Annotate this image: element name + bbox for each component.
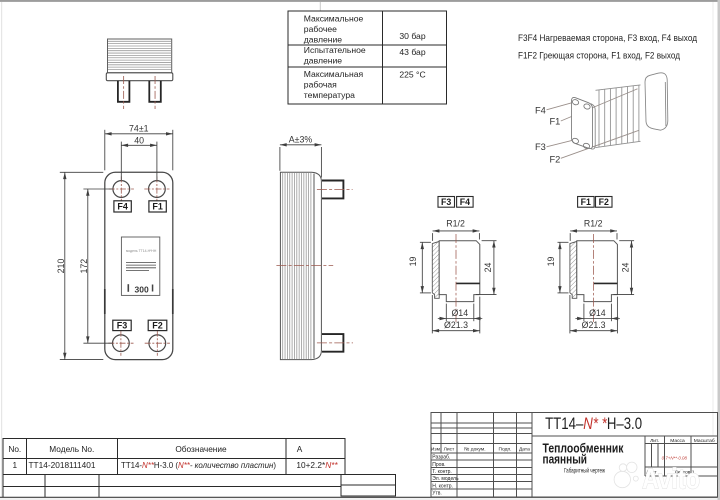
svg-text:Максимальное: Максимальное	[304, 14, 364, 24]
svg-text:10+2.2*N**: 10+2.2*N**	[296, 460, 338, 470]
svg-text:Лист: Лист	[444, 447, 455, 453]
svg-text:A±3%: A±3%	[289, 135, 313, 145]
svg-text:Т. контр.: Т. контр.	[432, 469, 452, 475]
svg-text:температура: температура	[304, 90, 355, 100]
svg-text:40: 40	[134, 135, 144, 145]
svg-text:ТТ14-2018111401: ТТ14-2018111401	[28, 460, 95, 470]
svg-text:Эл. модель: Эл. модель	[432, 476, 459, 482]
svg-text:F3: F3	[441, 197, 451, 207]
svg-text:F1F2 Греющая сторона, F1 вход,: F1F2 Греющая сторона, F1 вход, F2 выход	[518, 51, 680, 61]
svg-text:Дата: Дата	[519, 447, 530, 453]
svg-text:172: 172	[79, 259, 89, 274]
svg-text:F4: F4	[535, 106, 546, 116]
svg-text:ТТ14–N* *Н–3.0: ТТ14–N* *Н–3.0	[545, 415, 642, 433]
svg-text:Масса: Масса	[670, 438, 685, 444]
svg-text:Лит.: Лит.	[650, 438, 659, 444]
svg-text:Н. контр.: Н. контр.	[432, 483, 453, 489]
svg-text:74±1: 74±1	[129, 124, 149, 134]
svg-text:Модель No.: Модель No.	[49, 444, 94, 454]
svg-text:Обозначение: Обозначение	[175, 444, 227, 454]
svg-text:F3: F3	[117, 321, 128, 331]
svg-text:F1: F1	[152, 202, 163, 212]
svg-text:30 бар: 30 бар	[399, 31, 425, 41]
svg-text:F3F4 Нагреваемая сторона, F3 в: F3F4 Нагреваемая сторона, F3 вход, F4 вы…	[518, 33, 698, 43]
svg-text:ТТ14-N**Н-3.0 (N**- количеств: ТТ14-N**Н-3.0 (N**- количество пластин)	[121, 461, 276, 470]
svg-text:Avito: Avito	[642, 463, 700, 495]
svg-text:300: 300	[135, 284, 149, 294]
svg-text:0.7+N**·0.08: 0.7+N**·0.08	[662, 455, 688, 460]
svg-text:43 бар: 43 бар	[399, 47, 425, 57]
svg-text:Разраб.: Разраб.	[432, 455, 450, 461]
svg-text:F1: F1	[581, 197, 591, 207]
svg-text:Масштаб: Масштаб	[694, 438, 715, 444]
svg-text:F1: F1	[550, 116, 561, 126]
svg-text:рабочее: рабочее	[304, 24, 337, 34]
svg-text:давление: давление	[304, 56, 343, 66]
svg-text:рабочая: рабочая	[304, 80, 337, 90]
svg-text:No.: No.	[8, 444, 21, 454]
svg-text:F4: F4	[117, 202, 128, 212]
svg-text:210: 210	[56, 259, 66, 274]
svg-text:F4: F4	[460, 197, 470, 207]
svg-text:F2: F2	[550, 154, 561, 164]
svg-text:Габаритный чертеж: Габаритный чертеж	[564, 467, 605, 475]
svg-text:паянный: паянный	[543, 451, 588, 466]
svg-text:модель ТТ14-Н*НН: модель ТТ14-Н*НН	[126, 249, 157, 253]
svg-text:F2: F2	[152, 321, 163, 331]
svg-text:Испытательное: Испытательное	[304, 45, 366, 55]
svg-text:Максимальная: Максимальная	[304, 69, 364, 79]
svg-text:F2: F2	[599, 197, 609, 207]
svg-text:225 °C: 225 °C	[399, 69, 425, 79]
svg-text:F3: F3	[535, 142, 546, 152]
svg-text:1: 1	[12, 460, 17, 470]
svg-text:A: A	[297, 444, 303, 454]
svg-text:№ докум.: № докум.	[464, 447, 486, 453]
svg-text:Изм.: Изм.	[431, 447, 441, 453]
svg-text:Утв.: Утв.	[432, 491, 442, 497]
svg-text:Пров.: Пров.	[432, 462, 445, 468]
svg-text:давление: давление	[304, 35, 343, 45]
svg-text:Подп.: Подп.	[499, 447, 512, 453]
